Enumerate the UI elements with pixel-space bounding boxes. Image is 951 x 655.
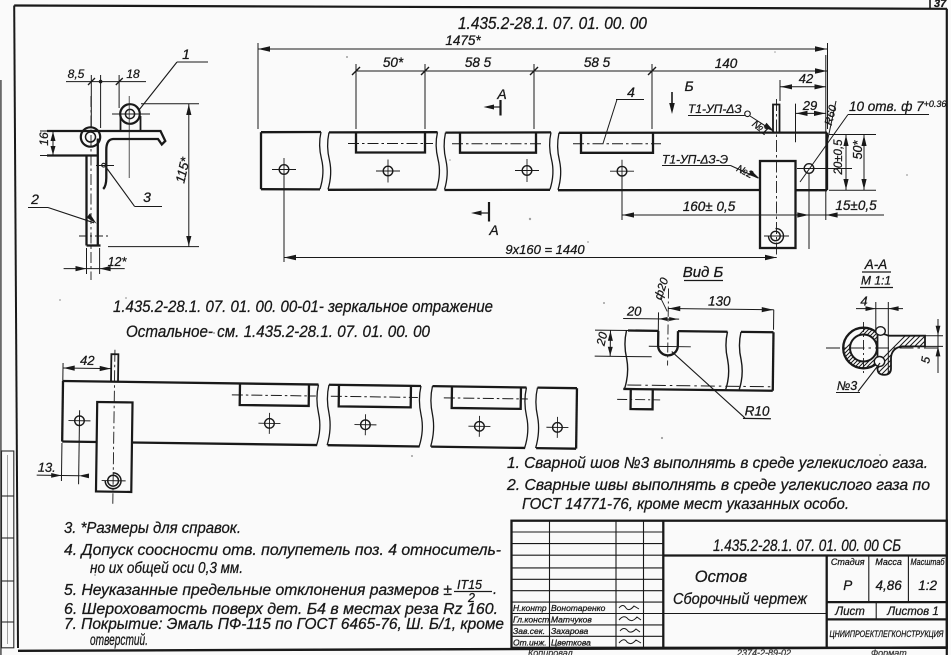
svg-text:13.: 13.: [38, 460, 56, 475]
svg-text:ЦНИИПРОЕКТЛЕГКОНСТРУКЦИЯ: ЦНИИПРОЕКТЛЕГКОНСТРУКЦИЯ: [830, 629, 945, 639]
svg-text:7. Покрытие: Эмаль ПФ-115: 7. Покрытие: Эмаль ПФ-115 по ГОСТ 6465-7…: [64, 616, 504, 633]
svg-text:1.435.2-28.1. 07. 01. 00. 00: 1.435.2-28.1. 07. 01. 00. 00: [458, 13, 647, 33]
svg-text:160± 0,5: 160± 0,5: [683, 199, 736, 214]
svg-text:Вонотаренко: Вонотаренко: [551, 603, 606, 613]
svg-text:Р: Р: [843, 578, 852, 593]
svg-text:Т1-УП-ΔЗ: Т1-УП-ΔЗ: [688, 102, 742, 116]
svg-text:2: 2: [30, 191, 39, 207]
svg-text:Листов 1: Листов 1: [886, 606, 938, 618]
svg-text:2. Сварные швы выполнять в с: 2. Сварные швы выполнять в среде углекис…: [506, 477, 930, 494]
svg-text:А: А: [488, 222, 498, 238]
svg-text:IT15: IT15: [457, 578, 482, 592]
svg-text:42: 42: [799, 71, 814, 86]
svg-text:Н.контр: Н.контр: [513, 603, 547, 613]
svg-text:Лист: Лист: [834, 606, 865, 618]
svg-text:Матчуков: Матчуков: [551, 615, 592, 625]
svg-text:Остов: Остов: [695, 568, 748, 586]
svg-text:1. Сварной шов №3 выполнять: 1. Сварной шов №3 выполнять в среде угле…: [507, 455, 928, 472]
svg-text:1: 1: [182, 46, 190, 62]
svg-text:Б: Б: [684, 78, 693, 94]
svg-text:4: 4: [860, 294, 867, 309]
svg-text:1.435.2-28.1. 07. 01. 00. 00-0: 1.435.2-28.1. 07. 01. 00. 00-01- зеркаль…: [113, 297, 493, 316]
svg-text:От.инж.: От.инж.: [513, 638, 547, 648]
svg-text:отверстий.: отверстий.: [90, 632, 148, 649]
svg-text:R10: R10: [745, 403, 770, 418]
svg-text:Захарова: Захарова: [551, 626, 589, 636]
svg-text:130: 130: [708, 293, 731, 308]
svg-text:1:2: 1:2: [918, 578, 937, 593]
svg-text:8,5: 8,5: [68, 67, 85, 81]
svg-text:Формат: Формат: [871, 648, 907, 655]
svg-text:42: 42: [80, 353, 95, 368]
svg-text:1.435.2-28.1. 07. 01. 00. 00: 1.435.2-28.1. 07. 01. 00. 00 СБ: [713, 536, 901, 555]
svg-text:А: А: [496, 86, 506, 102]
svg-text:№3: №3: [837, 379, 858, 393]
svg-text:Т1-УП-ΔЗ-Э: Т1-УП-ΔЗ-Э: [662, 153, 728, 167]
svg-text:140: 140: [715, 56, 738, 71]
svg-text:Гл.конст.: Гл.конст.: [513, 615, 551, 625]
svg-text:29: 29: [802, 98, 817, 113]
svg-text:3. *Размеры для справок.: 3. *Размеры для справок.: [64, 520, 241, 537]
svg-text:но их общей оси 0,3 мм.: но их общей оси 0,3 мм.: [90, 560, 243, 577]
svg-text:Стадия: Стадия: [831, 557, 865, 567]
svg-text:20±0,5: 20±0,5: [833, 139, 845, 176]
svg-text:9х160 = 1440: 9х160 = 1440: [505, 242, 585, 257]
svg-text:58 5: 58 5: [584, 55, 611, 70]
svg-text:50*: 50*: [851, 139, 865, 159]
svg-text:1475*: 1475*: [445, 33, 481, 48]
svg-text:5. Неуказанные предельные от: 5. Неуказанные предельные отклонения раз…: [64, 582, 452, 599]
svg-text:3: 3: [143, 189, 151, 205]
svg-text:18: 18: [126, 67, 140, 81]
svg-text:4. Допуск соосности отв. пол: 4. Допуск соосности отв. полупетель поз.…: [64, 542, 501, 559]
svg-text:58 5: 58 5: [465, 55, 492, 70]
svg-text:Остальное- см. 1.435.2-28.1.: Остальное- см. 1.435.2-28.1. 07. 01. 00.…: [126, 322, 431, 341]
svg-text:Цветкова: Цветкова: [551, 638, 591, 648]
svg-text:А-А: А-А: [864, 257, 888, 272]
svg-text:2374-2-89-02: 2374-2-89-02: [736, 648, 791, 655]
svg-text:ГОСТ 14771-76, кроме мест ук: ГОСТ 14771-76, кроме мест указанных особ…: [522, 496, 849, 513]
svg-text:М 1:1: М 1:1: [861, 274, 891, 288]
svg-text:Зав.сек.: Зав.сек.: [513, 626, 545, 636]
svg-text:.: .: [493, 582, 497, 598]
svg-text:Масштаб: Масштаб: [911, 557, 946, 567]
svg-text:12*: 12*: [108, 255, 128, 269]
svg-text:50*: 50*: [383, 55, 404, 70]
svg-text:Сборочный чертеж: Сборочный чертеж: [673, 591, 808, 608]
svg-text:4: 4: [627, 84, 635, 100]
svg-text:Масса: Масса: [875, 557, 902, 567]
svg-text:20: 20: [626, 303, 642, 318]
svg-text:Вид Б: Вид Б: [683, 264, 724, 281]
svg-text:15±0,5: 15±0,5: [835, 198, 877, 213]
svg-text:16: 16: [37, 132, 51, 146]
svg-text:37: 37: [934, 0, 947, 10]
svg-text:4,86: 4,86: [875, 578, 902, 593]
svg-text:Копировал: Копировал: [528, 648, 573, 655]
